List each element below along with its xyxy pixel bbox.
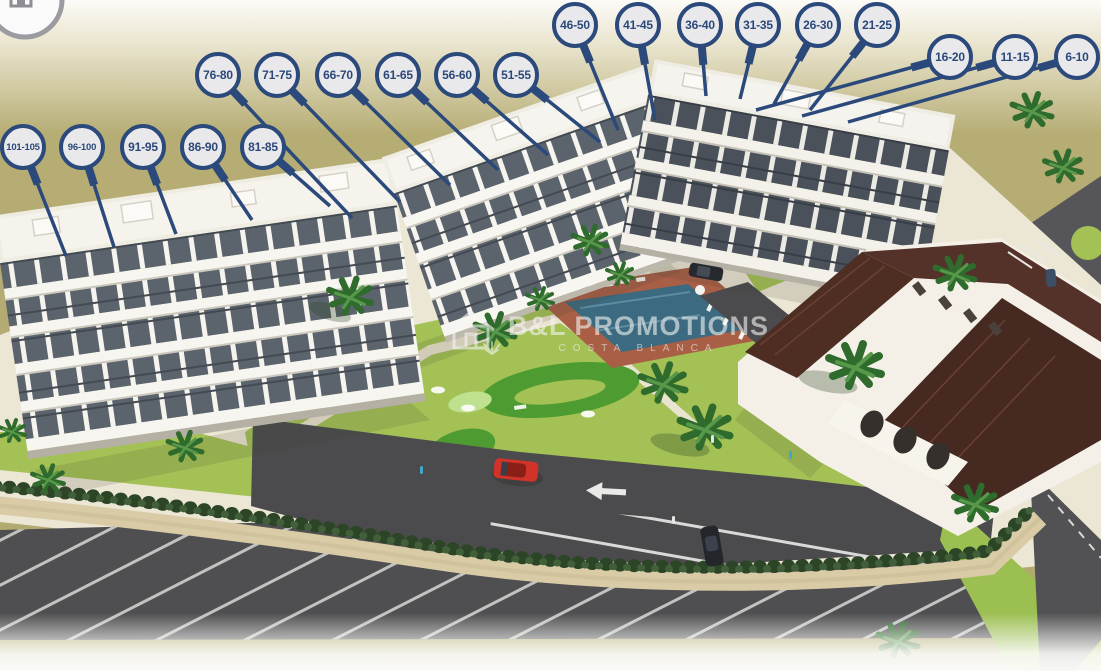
unit-range-marker-21-25[interactable]: 21-25 (854, 2, 900, 48)
unit-range-marker-91-95[interactable]: 91-95 (120, 124, 166, 170)
unit-markers-layer: 46-5041-4536-4031-3526-3021-2516-2011-15… (0, 0, 1101, 671)
unit-range-marker-71-75[interactable]: 71-75 (254, 52, 300, 98)
site-plan-stage: B&L PROMOTIONS COSTA BLANCA 46-5041-4536… (0, 0, 1101, 671)
unit-range-marker-51-55[interactable]: 51-55 (493, 52, 539, 98)
unit-range-marker-81-85[interactable]: 81-85 (240, 124, 286, 170)
unit-range-marker-31-35[interactable]: 31-35 (735, 2, 781, 48)
unit-range-marker-86-90[interactable]: 86-90 (180, 124, 226, 170)
unit-range-marker-46-50[interactable]: 46-50 (552, 2, 598, 48)
unit-range-marker-41-45[interactable]: 41-45 (615, 2, 661, 48)
unit-range-marker-36-40[interactable]: 36-40 (677, 2, 723, 48)
unit-range-marker-6-10[interactable]: 6-10 (1054, 34, 1100, 80)
unit-range-marker-61-65[interactable]: 61-65 (375, 52, 421, 98)
unit-range-marker-16-20[interactable]: 16-20 (927, 34, 973, 80)
unit-range-marker-101-105[interactable]: 101-105 (0, 124, 46, 170)
unit-range-marker-96-100[interactable]: 96-100 (59, 124, 105, 170)
unit-range-marker-56-60[interactable]: 56-60 (434, 52, 480, 98)
unit-range-marker-26-30[interactable]: 26-30 (795, 2, 841, 48)
unit-range-marker-76-80[interactable]: 76-80 (195, 52, 241, 98)
unit-range-marker-66-70[interactable]: 66-70 (315, 52, 361, 98)
unit-range-marker-11-15[interactable]: 11-15 (992, 34, 1038, 80)
